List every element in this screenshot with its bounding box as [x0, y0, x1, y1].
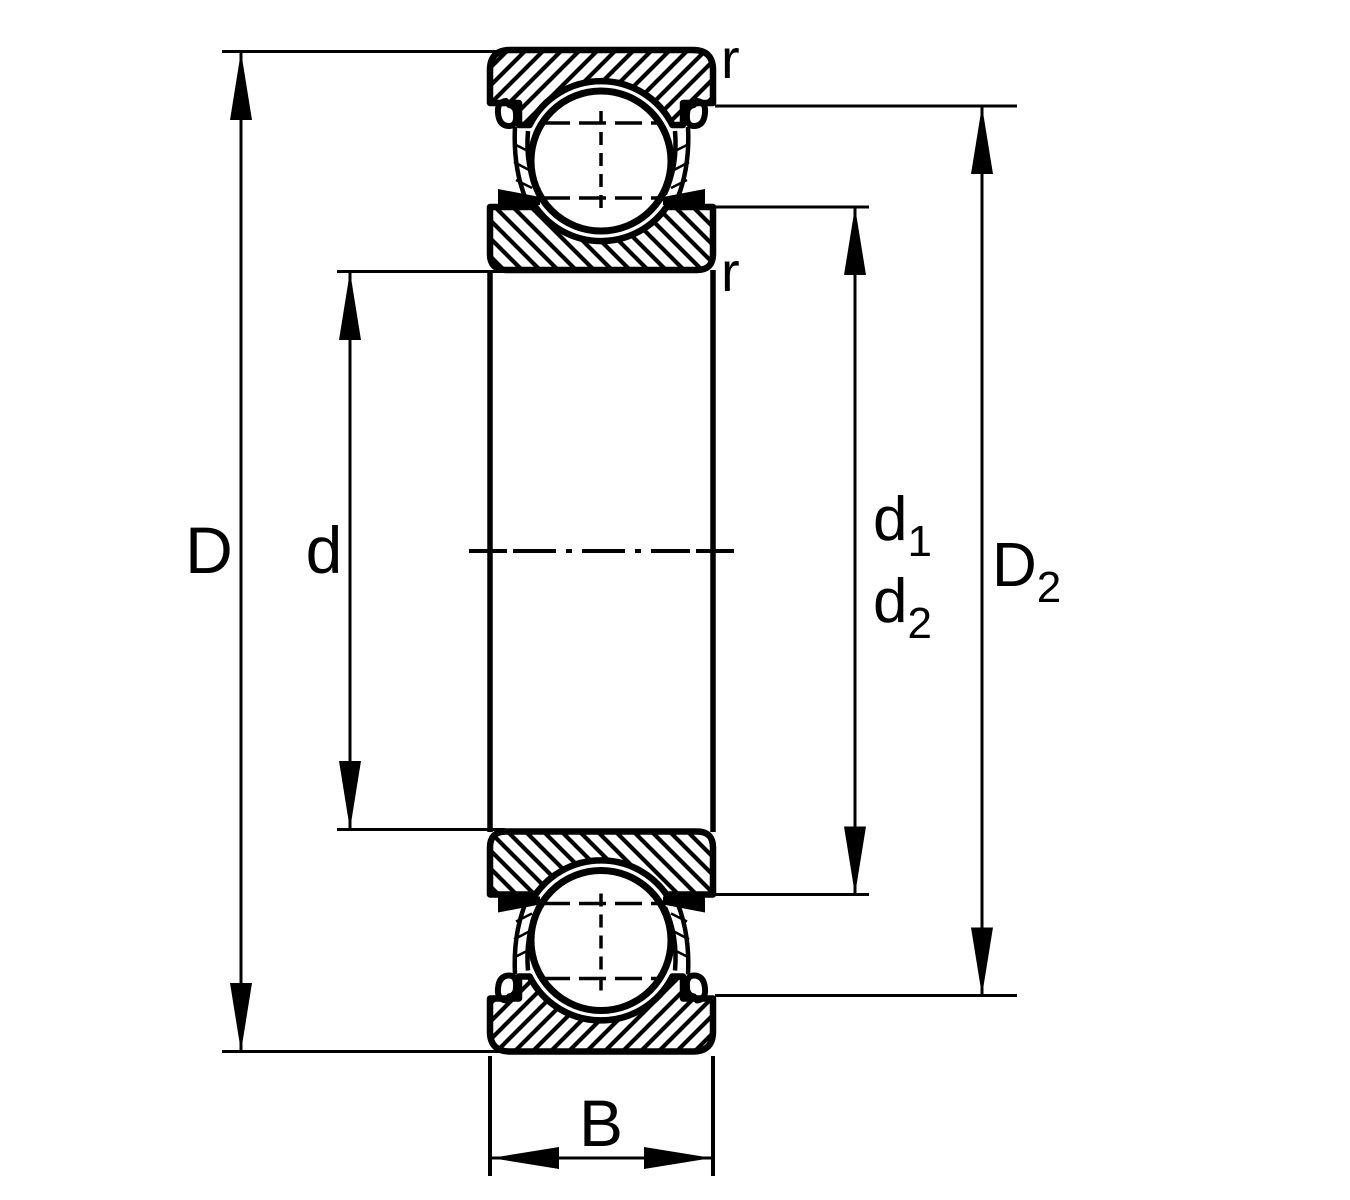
label-r-top: r — [721, 27, 740, 90]
bearing-cross-section-drawing: D d d1 d2 D2 B r r — [0, 0, 1350, 1200]
label-d1-base: d — [873, 485, 907, 554]
label-D2-sub: 2 — [1037, 563, 1061, 612]
label-d2-base: d — [873, 567, 907, 636]
label-D: D — [185, 513, 233, 587]
label-d: d — [306, 513, 343, 587]
ball-top — [531, 91, 671, 231]
label-d1-sub: 1 — [907, 517, 931, 566]
label-B: B — [579, 1086, 623, 1160]
ball-bottom — [531, 871, 671, 1011]
label-r-bottom: r — [721, 240, 740, 303]
bearing-drawing-page: D d d1 d2 D2 B r r — [0, 0, 1350, 1200]
label-d2-sub: 2 — [907, 599, 931, 648]
label-D2-base: D — [992, 531, 1037, 600]
